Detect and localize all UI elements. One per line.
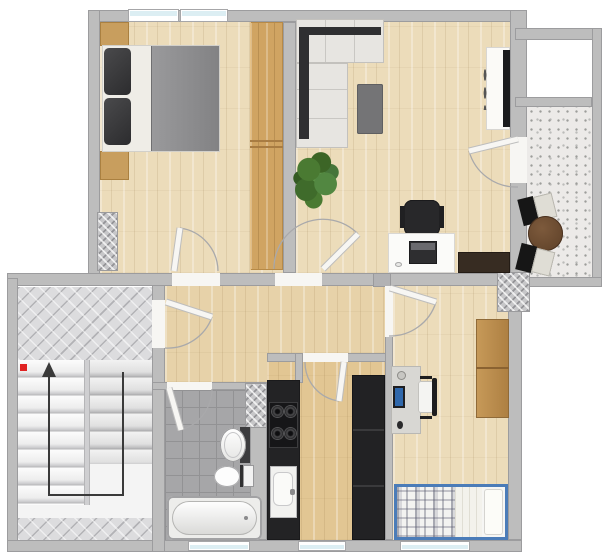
wall-junction-pillar — [373, 273, 391, 287]
wall-small-room-right — [508, 285, 522, 540]
window-glass — [300, 545, 344, 549]
single-bed-duvet — [455, 487, 482, 537]
wall-stairwell-left — [7, 278, 18, 552]
door-opening-small-room — [385, 286, 393, 337]
corner-sofa-top-arm — [296, 19, 384, 63]
sideboard-living — [458, 252, 510, 273]
stair-landing-bottom — [18, 518, 152, 540]
desk-small-room — [391, 366, 421, 434]
window-glass — [402, 545, 468, 549]
window-bathroom — [188, 541, 250, 551]
cabinet-knob-dots — [483, 66, 487, 110]
wardrobe-bedroom — [250, 22, 283, 270]
bed-pillow-top — [104, 48, 131, 95]
door-opening-bedroom — [172, 273, 220, 286]
desk-chair-armrest-top — [420, 376, 432, 379]
wall-extension-top — [515, 28, 602, 40]
potted-plant — [292, 152, 340, 210]
desk-mouse — [397, 421, 403, 429]
bathtub — [167, 496, 262, 540]
single-bed-pillow — [484, 489, 503, 535]
window-glass — [182, 11, 226, 16]
sink-faucet — [290, 489, 295, 495]
washbasin — [220, 428, 246, 462]
window-bedroom-right — [180, 9, 228, 22]
laptop-screen — [411, 243, 435, 250]
single-bed — [394, 484, 508, 540]
bathtub-drain — [244, 516, 248, 520]
window-glass — [130, 11, 177, 16]
door-opening-kitchen — [303, 353, 348, 362]
desk-chair-armrest-bottom — [420, 416, 432, 419]
floor-hallway-extension — [165, 353, 267, 382]
kitchen-sink — [270, 466, 297, 518]
monitor-screen — [395, 388, 403, 406]
wall-kitchen-stub — [295, 353, 303, 383]
floor-hallway — [165, 286, 385, 353]
wall-balcony-top — [515, 97, 592, 107]
kitchen-tall-unit — [352, 375, 385, 540]
office-chair-armrest-right — [439, 206, 444, 228]
stair-landing-top — [18, 287, 152, 360]
nightstand-bottom — [100, 151, 129, 180]
coffee-table — [357, 84, 383, 134]
mouse — [395, 262, 402, 267]
wardrobe-seam — [476, 367, 509, 369]
chimney-shaft-corner — [497, 272, 530, 312]
toilet-bowl — [214, 466, 240, 487]
wall-mid-horizontal — [7, 273, 530, 286]
gas-stove — [269, 402, 298, 448]
window-small-room — [400, 541, 470, 551]
floor-plan-canvas — [0, 0, 605, 560]
wardrobe-seam — [250, 146, 283, 148]
red-marker — [20, 364, 27, 371]
window-glass — [190, 545, 248, 549]
stairs-left-flight — [18, 360, 84, 505]
door-opening-living-room — [275, 273, 322, 286]
burner — [285, 428, 296, 439]
sofa-backrest-horizontal — [299, 27, 381, 35]
door-opening-entrance — [152, 300, 165, 348]
basin-inner — [224, 432, 242, 458]
bed-blanket — [151, 46, 219, 151]
office-chair-armrest-left — [400, 206, 405, 228]
double-bed — [102, 45, 220, 152]
toilet-tank — [240, 465, 254, 487]
desk-living — [388, 233, 455, 273]
single-bed-plaid-blanket — [397, 487, 455, 537]
burner — [272, 406, 283, 417]
chimney-shaft-bedroom — [97, 212, 118, 271]
door-opening-balcony — [510, 137, 527, 183]
desk-speaker — [397, 371, 406, 380]
tv-screen — [503, 50, 510, 127]
window-kitchen — [298, 541, 346, 551]
chimney-shaft-hall — [245, 383, 267, 428]
wall-extension-right — [592, 28, 602, 287]
window-bedroom-left — [128, 9, 179, 22]
door-opening-bathroom — [167, 382, 212, 390]
wardrobe-seam — [250, 140, 283, 142]
desk-monitor — [393, 386, 405, 408]
stairs-right-flight — [90, 360, 152, 464]
burner — [285, 406, 296, 417]
wardrobe-small-room — [476, 319, 509, 418]
stairs-divider — [84, 360, 90, 505]
desk-chair-backrest — [432, 378, 437, 416]
nightstand-top — [100, 22, 129, 46]
office-chair-living — [404, 200, 440, 236]
burner — [272, 428, 283, 439]
sofa-backrest-vertical — [299, 27, 309, 139]
wall-bedroom-living — [283, 22, 296, 273]
laptop — [409, 241, 437, 264]
bed-pillow-bottom — [104, 98, 131, 145]
